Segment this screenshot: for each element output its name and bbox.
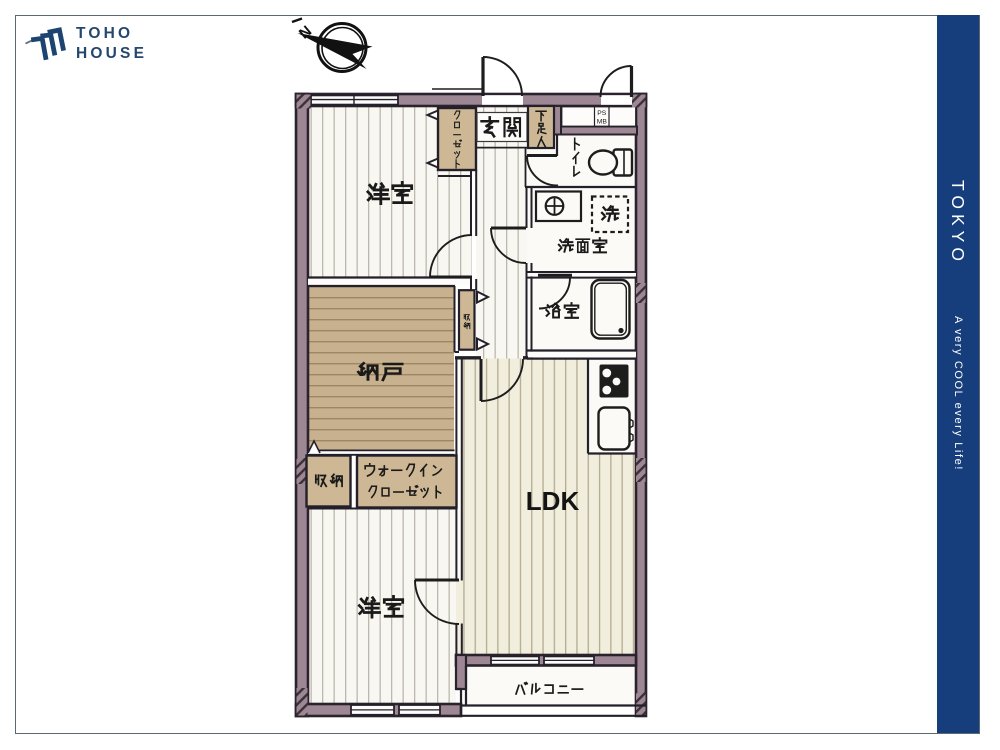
svg-text:PS: PS	[597, 110, 607, 117]
svg-text:LDK: LDK	[526, 486, 580, 516]
svg-text:MB: MB	[597, 118, 608, 125]
